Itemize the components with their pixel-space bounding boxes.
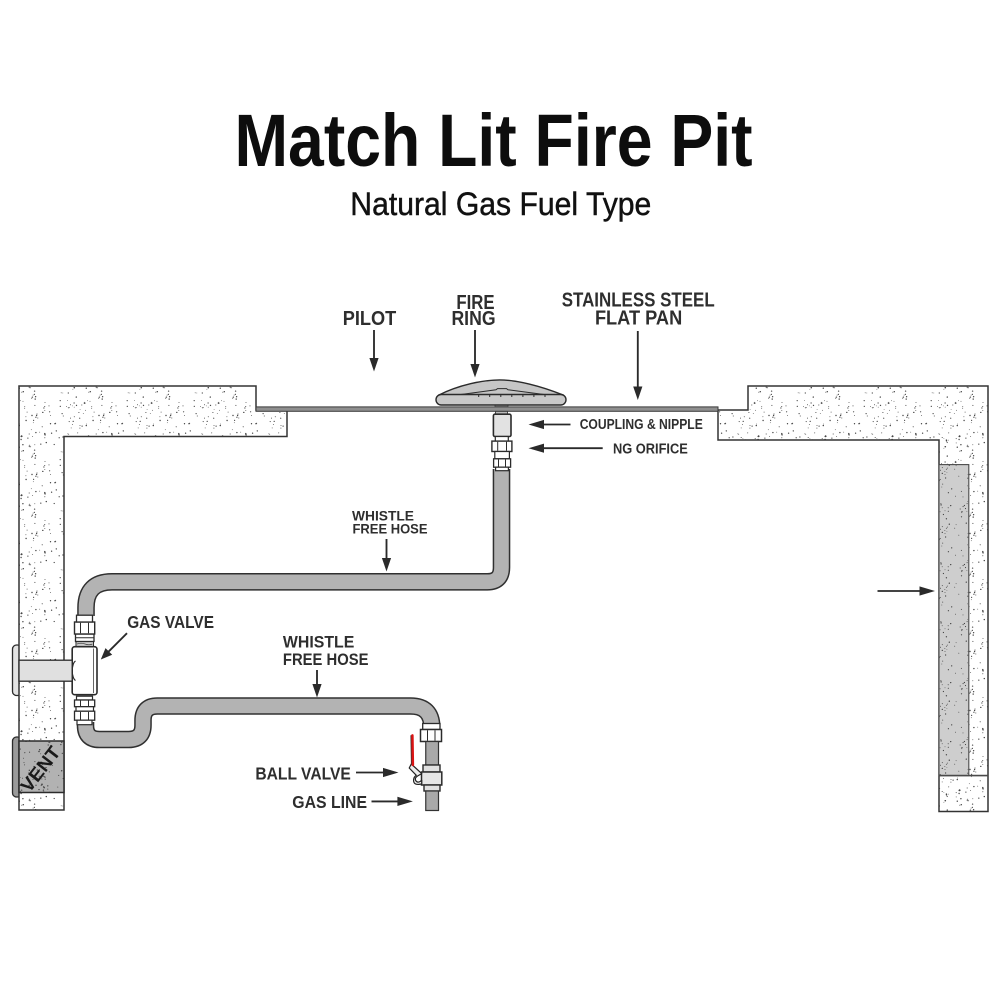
svg-text:FREE HOSE: FREE HOSE [283,650,369,669]
svg-text:PILOT: PILOT [343,308,397,330]
svg-text:GAS LINE: GAS LINE [292,792,367,812]
svg-text:COUPLING & NIPPLE: COUPLING & NIPPLE [580,417,703,433]
svg-text:FLAT PAN: FLAT PAN [595,308,682,330]
svg-text:FREE HOSE: FREE HOSE [353,521,428,537]
svg-text:WHISTLE: WHISTLE [283,633,354,652]
svg-text:Natural Gas Fuel Type: Natural Gas Fuel Type [350,186,651,222]
svg-text:NG ORIFICE: NG ORIFICE [613,441,688,457]
svg-text:RING: RING [451,308,495,330]
svg-text:GAS VALVE: GAS VALVE [127,612,214,632]
svg-text:BALL VALVE: BALL VALVE [255,763,350,783]
svg-text:Match Lit Fire Pit: Match Lit Fire Pit [235,99,753,182]
